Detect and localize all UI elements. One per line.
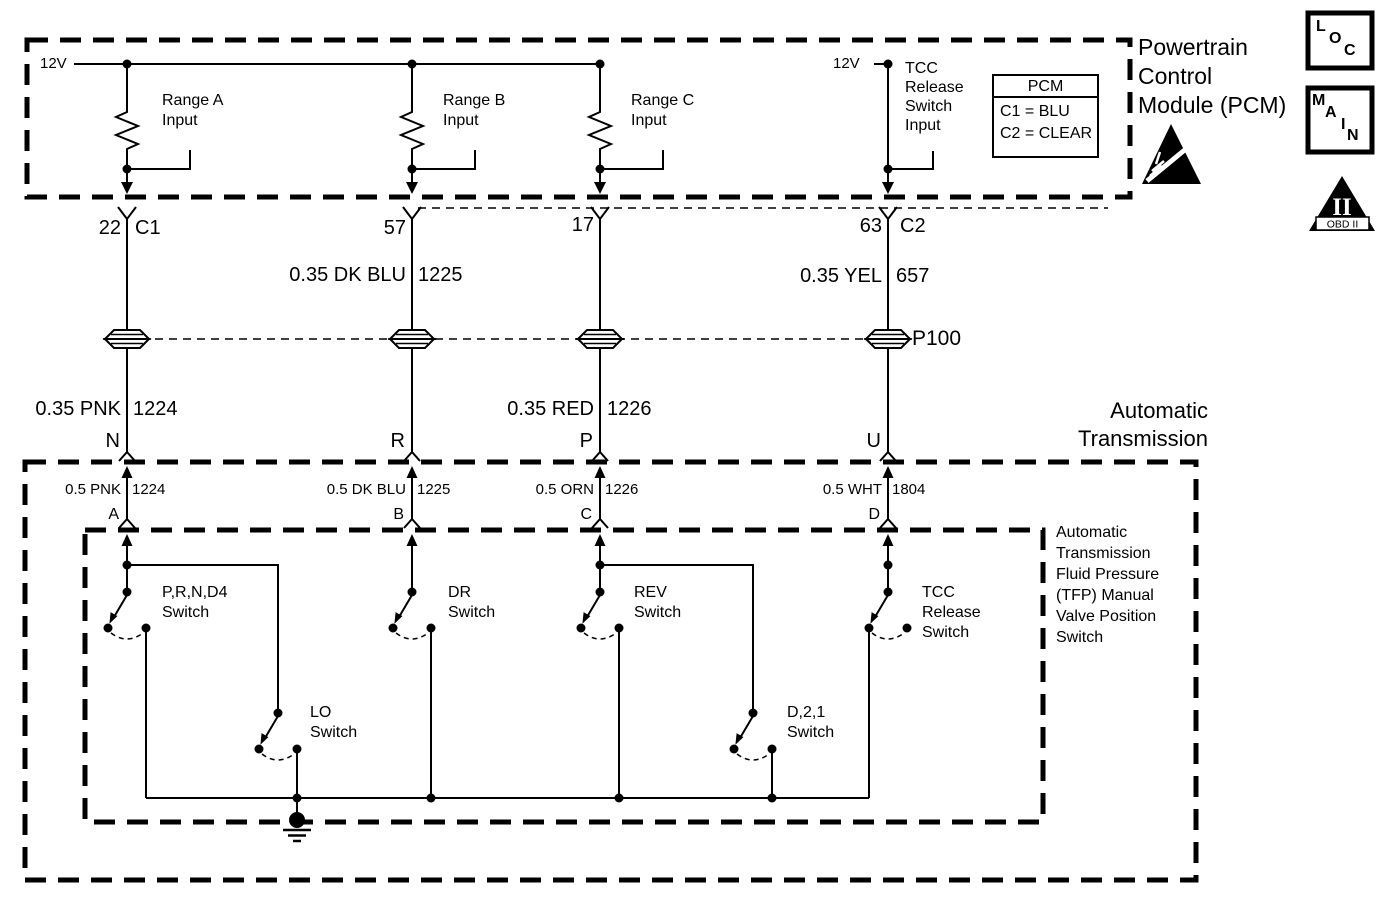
trans-pin-n: N — [0, 430, 120, 454]
obd-label: OBD II — [1327, 219, 1359, 231]
switch-dr-label: DR Switch — [448, 583, 495, 623]
pin-63: 63 — [742, 215, 882, 239]
main-letter-i: I — [1341, 116, 1345, 134]
p100-label: P100 — [912, 327, 961, 352]
pcm-legend-header: PCM — [993, 77, 1098, 97]
p100-connector-3 — [578, 330, 622, 348]
transmission-box — [25, 462, 1196, 880]
trans-wire-d-gauge: 0.5 WHT — [742, 481, 882, 499]
trans-wire-d-circuit: 1804 — [892, 481, 925, 499]
p100-connector-2 — [390, 330, 434, 348]
main-letter-a: A — [1325, 104, 1337, 122]
tfp-pin-a: A — [0, 505, 119, 525]
trans-wire-c-gauge: 0.5 ORN — [454, 481, 594, 499]
switch-d21 — [730, 709, 777, 761]
switch-prnd4-label: P,R,N,D4 Switch — [162, 583, 228, 623]
trans-wire-b-circuit: 1225 — [417, 481, 450, 499]
range-a-input-label: Range A Input — [162, 91, 223, 131]
conn-c2: C2 — [900, 215, 926, 239]
tcc-input-label: TCC Release Switch Input — [905, 59, 964, 135]
tfp-title: Automatic Transmission Fluid Pressure (T… — [1056, 522, 1159, 648]
pcm-legend-row-c1: C1 = BLU — [1000, 102, 1070, 122]
esd-warning-icon — [1142, 124, 1201, 184]
trans-pin-u: U — [741, 430, 881, 454]
p100-connector-4 — [866, 330, 910, 348]
pcm-legend-row-c2: C2 = CLEAR — [1000, 124, 1092, 144]
range-b-input-label: Range B Input — [443, 91, 505, 131]
loc-letter-l: L — [1316, 18, 1326, 36]
wire-1225-gauge: 0.35 DK BLU — [266, 264, 406, 288]
conn-c1: C1 — [135, 217, 161, 241]
wiring-diagram: II OBD II — [0, 0, 1380, 907]
supply-12v-left: 12V — [40, 55, 67, 73]
pin-17: 17 — [454, 214, 594, 238]
wiring-diagram-page: II OBD II 12V Range A Input Range B Inpu… — [0, 0, 1380, 907]
tfp-switch-box — [85, 530, 1043, 822]
trans-wire-c-circuit: 1226 — [605, 481, 638, 499]
supply-12v-right: 12V — [833, 55, 860, 73]
obd2-badge: II OBD II — [1309, 176, 1375, 231]
switch-tcc-label: TCC Release Switch — [922, 583, 981, 643]
switch-rev — [577, 588, 624, 640]
trans-pin-p: P — [453, 430, 593, 454]
loc-letter-c: C — [1344, 42, 1356, 60]
pin-22: 22 — [0, 217, 121, 241]
switch-rev-label: REV Switch — [634, 583, 681, 623]
trans-wire-a-gauge: 0.5 PNK — [0, 481, 121, 499]
switch-lo — [255, 709, 302, 761]
switch-dr — [389, 588, 436, 640]
wire-657-circuit: 657 — [896, 265, 929, 289]
pcm-title: Powertrain Control Module (PCM) — [1138, 33, 1286, 120]
tfp-pin-d: D — [740, 505, 880, 525]
ground-bus — [146, 628, 869, 818]
wire-1226-circuit: 1226 — [607, 398, 652, 422]
tfp-pin-b: B — [264, 505, 404, 525]
transmission-title: Automatic Transmission — [1008, 397, 1208, 453]
loc-letter-o: O — [1329, 30, 1341, 48]
switch-prnd4 — [104, 588, 151, 640]
main-letter-n: N — [1347, 127, 1359, 145]
switch-d21-label: D,2,1 Switch — [787, 703, 834, 743]
wire-1224-gauge: 0.35 PNK — [0, 398, 121, 422]
ground-symbol — [283, 812, 311, 841]
range-c-input-label: Range C Input — [631, 91, 694, 131]
tfp-wires — [122, 534, 894, 713]
pin-57: 57 — [266, 217, 406, 241]
switch-lo-label: LO Switch — [310, 703, 357, 743]
trans-pin-r: R — [265, 430, 405, 454]
wire-1226-gauge: 0.35 RED — [454, 398, 594, 422]
p100-connector-1 — [105, 330, 149, 348]
wire-1225-circuit: 1225 — [418, 264, 463, 288]
tfp-pin-c: C — [452, 505, 592, 525]
trans-wire-b-gauge: 0.5 DK BLU — [266, 481, 406, 499]
main-letter-m: M — [1312, 92, 1325, 110]
wire-657-gauge: 0.35 YEL — [742, 265, 882, 289]
switch-tcc-release — [865, 588, 912, 640]
wire-1224-circuit: 1224 — [133, 398, 178, 422]
trans-wire-a-circuit: 1224 — [132, 481, 165, 499]
